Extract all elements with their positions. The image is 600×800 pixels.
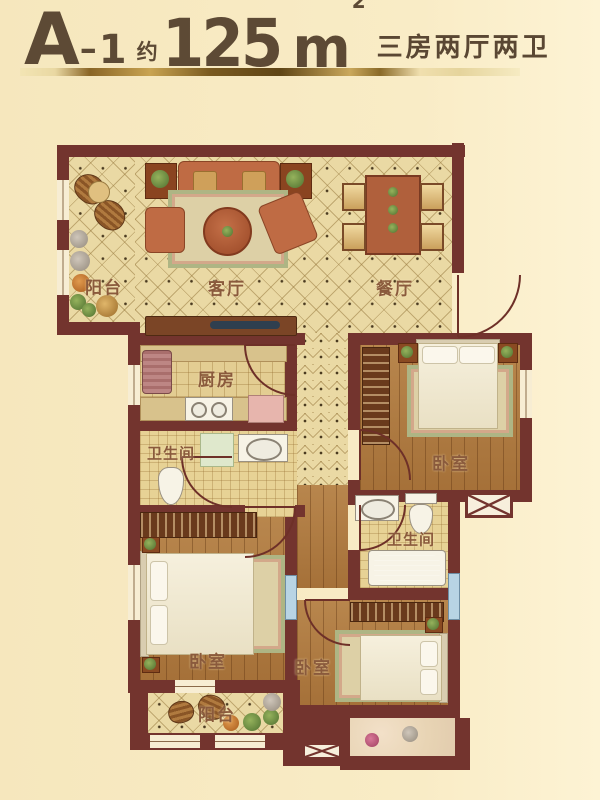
window <box>128 565 140 620</box>
layout-subtitle: 三房两厅两卫 <box>377 27 551 64</box>
plan-title: A – 1 约 125 m2 三房两厅两卫 <box>24 2 551 72</box>
room-label-living: 客厅 <box>208 275 246 300</box>
wardrobe <box>140 512 257 538</box>
unit-dash: – <box>80 31 97 68</box>
wall-top <box>57 145 465 157</box>
floorplan-page: { "header": { "unit": "A", "dash": "–", … <box>0 0 600 800</box>
room-label-bedroom1: 卧室 <box>432 450 470 475</box>
room-label-bath1: 卫生间 <box>147 443 195 464</box>
plant <box>243 713 261 731</box>
wall-balcony1-left <box>57 145 69 335</box>
washing-machine <box>142 350 172 394</box>
wall-dining-right <box>452 143 464 273</box>
area-unit: m2 <box>292 27 364 72</box>
wall-utility-right <box>455 718 470 770</box>
pillow <box>150 605 168 645</box>
area-value: 125 <box>162 16 280 72</box>
room-label-balcony-bottom: 阳台 <box>198 701 236 726</box>
burner <box>191 402 207 418</box>
wall-bath2-bedroom3 <box>348 588 460 600</box>
dining-chair <box>420 183 444 211</box>
hall-floor <box>297 485 348 588</box>
plant-pot <box>263 693 281 711</box>
burner <box>211 402 227 418</box>
tv <box>210 321 280 329</box>
plate <box>388 187 398 197</box>
plate <box>388 205 398 215</box>
dining-chair <box>420 223 444 251</box>
window <box>520 370 532 418</box>
shower-tray <box>200 433 234 467</box>
room-label-kitchen: 厨房 <box>198 366 236 391</box>
wall-bath1-bottom-b <box>295 505 305 517</box>
fridge <box>248 395 284 423</box>
bathtub-water <box>374 555 440 581</box>
toilet-tank <box>405 493 437 504</box>
window-blue <box>285 575 297 620</box>
plant <box>401 346 413 358</box>
window <box>215 735 265 748</box>
wardrobe <box>362 347 390 445</box>
window <box>175 680 215 693</box>
flower-pot <box>365 733 379 747</box>
wall-utility-bottom <box>340 756 470 770</box>
window-blue <box>448 573 460 620</box>
room-label-dining: 餐厅 <box>376 275 414 300</box>
armchair <box>145 207 185 253</box>
plant-pot <box>70 230 88 248</box>
window <box>57 180 69 220</box>
pillow <box>420 641 438 667</box>
pillow <box>150 561 168 601</box>
plant <box>144 658 156 670</box>
corridor-floor <box>297 333 348 485</box>
plant <box>144 538 156 550</box>
gold-divider <box>20 68 520 76</box>
plant <box>286 170 304 188</box>
window <box>57 250 69 295</box>
shaft-x-icon <box>465 492 513 518</box>
room-label-bedroom3: 卧室 <box>294 654 332 679</box>
wall-corridor-right-a <box>348 333 360 430</box>
shaft-x-icon <box>302 742 342 760</box>
window <box>128 365 140 405</box>
basin-bowl <box>361 499 395 520</box>
plate <box>388 223 398 233</box>
room-label-balcony-top: 阳台 <box>85 274 123 299</box>
plant <box>263 709 279 725</box>
plant <box>151 170 169 188</box>
pillow <box>422 346 458 364</box>
dining-chair <box>342 183 366 211</box>
room-label-bath2: 卫生间 <box>387 529 435 550</box>
dining-chair <box>342 223 366 251</box>
plant <box>82 303 96 317</box>
basin-bowl <box>246 438 282 461</box>
plant <box>222 226 233 237</box>
floor-plan: 阳台 客厅 餐厅 厨房 卫生间 卧室 卫生间 卧室 卧室 阳台 <box>50 135 542 780</box>
unit-number: 1 <box>99 30 127 70</box>
room-label-bedroom2: 卧室 <box>189 648 227 673</box>
unit-letter: A <box>24 7 78 72</box>
pillow <box>459 346 495 364</box>
plant <box>501 346 513 358</box>
plant-pot <box>70 251 90 271</box>
plant <box>427 618 439 630</box>
area-superscript: 2 <box>352 0 366 13</box>
plant-pot <box>402 726 418 742</box>
pillow <box>420 669 438 695</box>
balcony-table <box>88 181 110 203</box>
entry-door-arc <box>458 275 520 337</box>
window <box>150 735 200 748</box>
approx-char: 约 <box>137 36 158 66</box>
wall-bedroom3-bottom <box>283 705 460 718</box>
